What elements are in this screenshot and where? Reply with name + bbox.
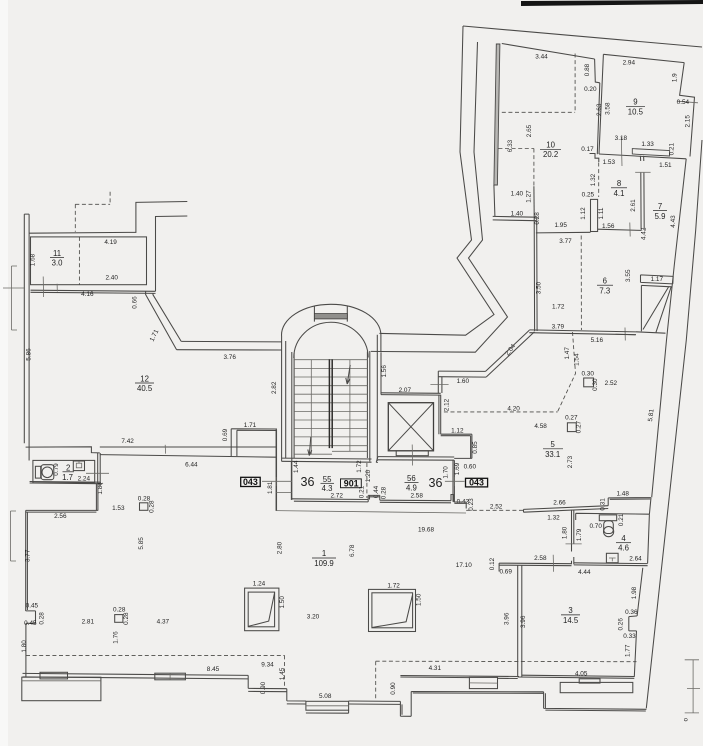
svg-text:2.65: 2.65 [526,124,533,137]
svg-text:0.21: 0.21 [669,143,676,156]
svg-text:0.69: 0.69 [222,428,229,441]
svg-text:0.33: 0.33 [623,633,636,640]
svg-text:1.68: 1.68 [29,253,36,266]
svg-text:0.25: 0.25 [582,191,595,198]
svg-text:2.81: 2.81 [82,618,95,625]
svg-text:0.79: 0.79 [53,463,60,476]
svg-text:2.52: 2.52 [490,503,503,510]
svg-text:4.43: 4.43 [670,215,677,228]
svg-text:1.76: 1.76 [113,631,120,644]
svg-text:0.27: 0.27 [575,420,582,433]
svg-text:6: 6 [603,276,607,285]
svg-text:4.16: 4.16 [81,291,94,298]
svg-text:0.30: 0.30 [592,378,599,391]
svg-text:1.70: 1.70 [443,466,450,479]
svg-text:19.68: 19.68 [418,527,434,534]
svg-text:3.18: 3.18 [615,135,628,142]
svg-text:4.05: 4.05 [575,671,588,678]
svg-text:5.86: 5.86 [26,348,33,361]
svg-text:1.9: 1.9 [672,73,679,82]
svg-text:2.66: 2.66 [553,499,566,506]
svg-text:0.88: 0.88 [584,63,591,76]
svg-text:2.40: 2.40 [105,275,118,282]
svg-text:1.7: 1.7 [62,473,73,482]
svg-text:1.81: 1.81 [267,481,274,494]
svg-text:0.36: 0.36 [625,609,638,616]
svg-text:36: 36 [429,476,443,490]
svg-text:0.60: 0.60 [464,463,477,470]
svg-text:1.44: 1.44 [293,460,300,473]
svg-text:55: 55 [323,475,332,484]
svg-text:10: 10 [546,141,555,150]
svg-text:1.53: 1.53 [112,505,125,512]
svg-text:6.33: 6.33 [507,139,514,152]
svg-text:4.31: 4.31 [429,665,442,672]
svg-text:1.56: 1.56 [381,365,388,378]
svg-text:0.21: 0.21 [618,513,625,526]
svg-text:7.42: 7.42 [121,438,134,445]
svg-text:1.79: 1.79 [576,528,583,541]
svg-text:2.24: 2.24 [78,476,91,483]
svg-text:20.2: 20.2 [543,150,558,159]
svg-text:1.77: 1.77 [624,644,631,657]
svg-text:3.77: 3.77 [559,238,572,245]
svg-text:2.63: 2.63 [596,103,603,116]
svg-text:4.6: 4.6 [618,544,629,553]
svg-text:3.55: 3.55 [625,269,632,282]
svg-text:1.71: 1.71 [244,422,257,429]
svg-text:3.96: 3.96 [503,612,510,625]
svg-text:7.3: 7.3 [599,286,610,295]
svg-text:1.40: 1.40 [511,191,524,198]
svg-text:3.20: 3.20 [307,614,320,621]
svg-text:1.20: 1.20 [365,469,372,482]
svg-text:o: o [683,718,690,722]
svg-text:1.12: 1.12 [451,428,464,435]
svg-text:0.90: 0.90 [260,681,267,694]
svg-text:3: 3 [568,606,572,615]
svg-text:12: 12 [140,374,149,383]
svg-text:1.12: 1.12 [580,207,587,220]
svg-text:5.08: 5.08 [319,693,332,700]
svg-text:2.15: 2.15 [684,115,691,128]
svg-text:1.60: 1.60 [457,378,470,385]
svg-text:0.20: 0.20 [584,86,597,93]
svg-text:1.17: 1.17 [651,276,664,283]
svg-text:3.76: 3.76 [223,354,236,361]
svg-text:1.11: 1.11 [598,207,605,219]
svg-text:1.51: 1.51 [659,162,672,169]
svg-text:2.94: 2.94 [623,60,636,67]
svg-text:0.28: 0.28 [148,500,155,513]
svg-text:109.9: 109.9 [314,559,334,568]
svg-text:0.23: 0.23 [468,498,475,511]
svg-text:10.5: 10.5 [628,108,644,117]
svg-text:1.72: 1.72 [387,582,400,589]
svg-text:9: 9 [633,98,637,107]
svg-text:0.30: 0.30 [581,370,594,377]
svg-text:1.45: 1.45 [279,667,286,680]
svg-text:2.61: 2.61 [630,199,637,212]
svg-text:5: 5 [551,440,556,449]
svg-text:2.12: 2.12 [443,398,450,411]
svg-text:1: 1 [322,549,326,558]
svg-text:0.45: 0.45 [26,603,39,610]
svg-text:0.28: 0.28 [381,486,388,499]
svg-text:3.58: 3.58 [605,102,612,115]
svg-text:4.9: 4.9 [406,483,417,492]
svg-text:1.48: 1.48 [616,490,629,497]
svg-text:56: 56 [407,474,416,483]
svg-text:2.56: 2.56 [54,513,67,520]
svg-text:4.37: 4.37 [157,618,170,625]
svg-text:0.66: 0.66 [132,296,139,309]
svg-text:1.95: 1.95 [554,222,567,229]
svg-text:0.17: 0.17 [581,146,594,153]
svg-text:40.5: 40.5 [137,384,153,393]
svg-text:4.19: 4.19 [104,239,117,246]
svg-text:0.28: 0.28 [534,212,541,225]
svg-text:1.47: 1.47 [564,347,571,360]
svg-text:2.64: 2.64 [629,556,642,563]
svg-text:1.32: 1.32 [590,173,597,186]
svg-text:4: 4 [621,534,626,543]
svg-text:36: 36 [301,475,315,489]
svg-text:2.58: 2.58 [410,492,423,499]
svg-text:4.20: 4.20 [507,405,520,412]
svg-text:1.27: 1.27 [526,190,533,203]
svg-text:1.80: 1.80 [21,640,28,653]
svg-text:6.44: 6.44 [185,461,198,468]
svg-text:1.72: 1.72 [552,304,565,311]
svg-text:1.53: 1.53 [603,159,616,166]
svg-text:3.96: 3.96 [520,615,527,628]
svg-text:0.28: 0.28 [123,612,130,625]
svg-text:1.50: 1.50 [279,596,286,609]
svg-text:8: 8 [617,179,621,188]
svg-text:3.77: 3.77 [24,549,31,562]
svg-text:2.07: 2.07 [399,387,412,394]
svg-text:901: 901 [344,479,359,489]
svg-text:2.80: 2.80 [277,541,284,554]
svg-text:1.80: 1.80 [562,526,569,539]
svg-text:0.27: 0.27 [565,415,578,422]
svg-text:1.50: 1.50 [416,593,423,606]
svg-text:5.85: 5.85 [138,537,145,550]
svg-text:2.58: 2.58 [534,555,547,562]
svg-text:5.16: 5.16 [591,337,604,344]
svg-text:1.40: 1.40 [511,210,524,217]
svg-text:2.73: 2.73 [567,455,574,468]
svg-text:043: 043 [469,478,484,488]
svg-text:0.69: 0.69 [499,569,512,576]
svg-text:4.44: 4.44 [578,569,591,576]
svg-text:043: 043 [243,477,258,487]
svg-text:6.78: 6.78 [349,544,356,557]
svg-text:1.98: 1.98 [631,586,638,599]
svg-text:1.72: 1.72 [356,460,363,473]
svg-text:7: 7 [658,202,662,211]
svg-text:2.72: 2.72 [330,493,343,500]
svg-text:2.82: 2.82 [271,381,278,394]
svg-text:1.56: 1.56 [602,223,615,230]
svg-text:4.42: 4.42 [640,227,647,240]
svg-text:4.58: 4.58 [534,423,547,430]
svg-text:4.1: 4.1 [614,189,625,198]
svg-text:0.28: 0.28 [38,612,45,625]
svg-text:1.32: 1.32 [547,515,560,522]
svg-text:3.0: 3.0 [52,258,64,267]
svg-text:0.12: 0.12 [489,557,496,570]
svg-text:33.1: 33.1 [545,450,560,459]
svg-text:14.5: 14.5 [563,616,579,625]
svg-text:3.79: 3.79 [552,323,565,330]
svg-text:8.45: 8.45 [207,666,220,673]
svg-text:5.9: 5.9 [655,212,666,221]
svg-text:1.69: 1.69 [454,462,461,475]
svg-text:0.54: 0.54 [677,99,690,106]
svg-text:0.31: 0.31 [600,498,607,511]
svg-text:9.34: 9.34 [261,662,274,669]
svg-text:3.44: 3.44 [535,54,548,61]
svg-text:0.90: 0.90 [390,682,397,695]
svg-text:0.70: 0.70 [589,523,602,530]
svg-text:2: 2 [66,463,70,472]
svg-text:1.33: 1.33 [641,141,654,148]
svg-text:0.45: 0.45 [24,620,37,627]
svg-text:11: 11 [53,249,61,258]
svg-text:2.52: 2.52 [605,380,618,387]
svg-text:0.85: 0.85 [472,441,479,454]
svg-text:17.10: 17.10 [456,562,472,569]
svg-text:0.21: 0.21 [359,485,366,498]
svg-text:3.50: 3.50 [535,281,542,294]
svg-text:0.26: 0.26 [617,618,624,631]
svg-text:1.24: 1.24 [253,580,266,587]
